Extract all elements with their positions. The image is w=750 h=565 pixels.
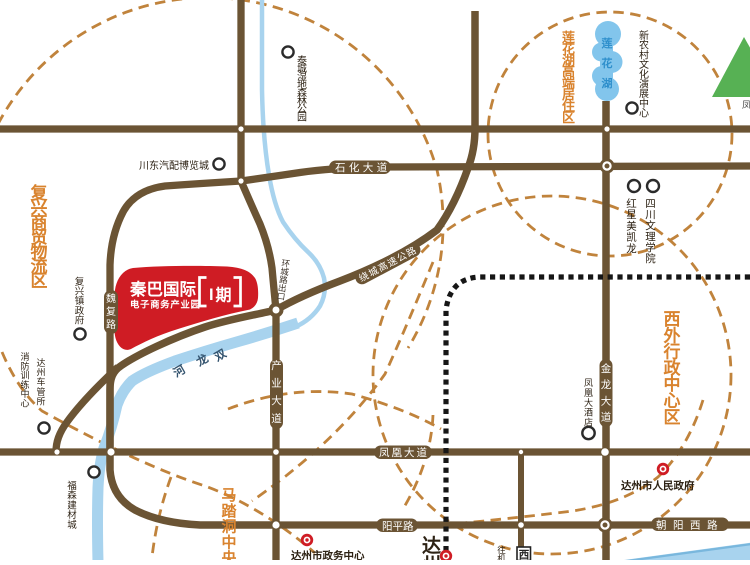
svg-text:达州车管所: 达州车管所	[36, 357, 45, 406]
svg-text:往机场: 往机场	[497, 545, 506, 560]
svg-text:福森建材城: 福森建材城	[67, 480, 77, 531]
svg-text:复兴商贸物流区: 复兴商贸物流区	[30, 183, 49, 291]
svg-text:西外行政中心区: 西外行政中心区	[663, 310, 682, 427]
svg-text:阳平路: 阳平路	[382, 520, 414, 533]
svg-text:四川文理学院: 四川文理学院	[645, 198, 656, 265]
svg-text:莲花湖高端居住区: 莲花湖高端居住区	[562, 30, 575, 125]
svg-text:红星美凯龙: 红星美凯龙	[626, 197, 637, 255]
svg-text:莲花湖: 莲花湖	[602, 36, 613, 90]
svg-text:凤: 凤	[742, 100, 750, 110]
svg-text:泰城湿地森林公园: 泰城湿地森林公园	[297, 54, 307, 124]
svg-text:石化大道: 石化大道	[335, 161, 391, 174]
svg-text:达州火车站: 达州火车站	[422, 534, 442, 560]
svg-text:达州市政务中心: 达州市政务中心	[291, 549, 365, 560]
svg-text:I: I	[209, 286, 214, 304]
svg-text:消防训练中心: 消防训练中心	[20, 351, 29, 409]
svg-text:秦巴国际: 秦巴国际	[130, 279, 197, 299]
svg-text:新农村文化演展中心: 新农村文化演展中心	[639, 29, 649, 120]
svg-text:达州市人民政府: 达州市人民政府	[621, 479, 695, 492]
svg-text:电子商务产业园: 电子商务产业园	[130, 299, 201, 310]
svg-text:川东汽配博览城: 川东汽配博览城	[139, 159, 209, 172]
svg-text:朝阳西路: 朝阳西路	[656, 519, 724, 532]
svg-text:马踏洞中央商务区: 马踏洞中央商务区	[221, 487, 237, 560]
svg-text:魏复路: 魏复路	[106, 292, 116, 331]
svg-text:凤凰大道: 凤凰大道	[379, 446, 429, 459]
svg-text:西: 西	[519, 549, 530, 560]
svg-text:复兴镇政府: 复兴镇政府	[75, 276, 85, 326]
svg-text:凤凰大酒店: 凤凰大酒店	[584, 378, 593, 428]
svg-text:期: 期	[216, 286, 232, 305]
